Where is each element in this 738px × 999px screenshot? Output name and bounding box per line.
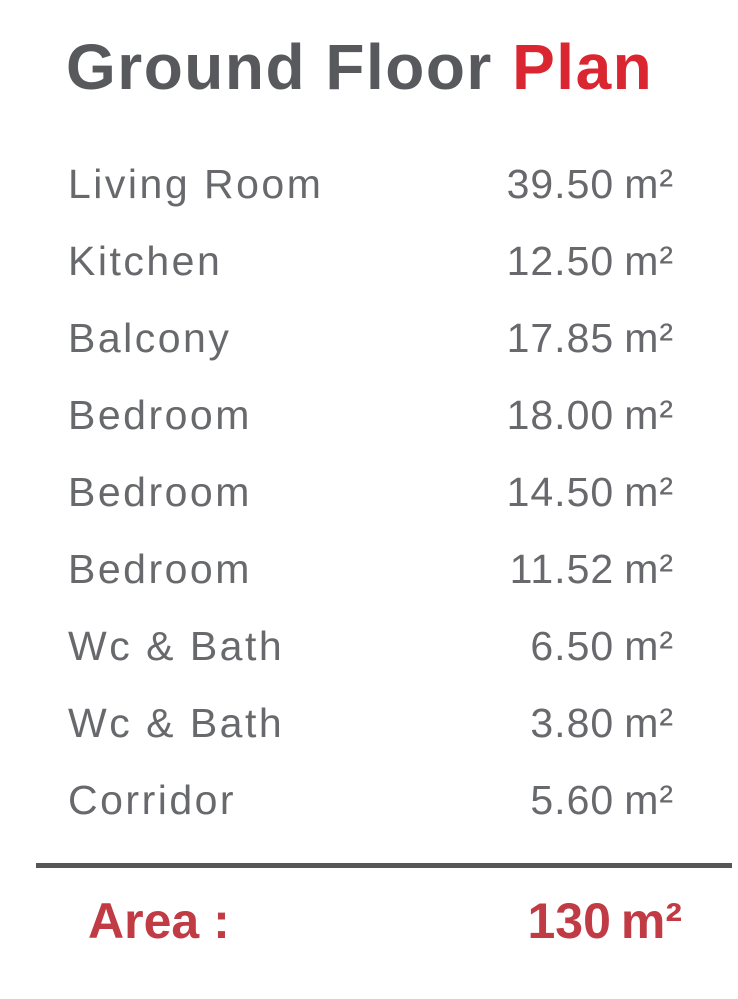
- room-area: 18.00m²: [507, 392, 674, 439]
- room-area-number: 5.60: [530, 777, 614, 823]
- room-name: Bedroom: [68, 469, 252, 516]
- room-area-unit: m²: [624, 623, 674, 669]
- room-area: 6.50m²: [530, 623, 674, 670]
- room-area-table: Living Room 39.50m² Kitchen 12.50m² Balc…: [0, 146, 738, 839]
- room-area-number: 12.50: [507, 238, 615, 284]
- room-area-unit: m²: [624, 392, 674, 438]
- room-name: Wc & Bath: [68, 700, 284, 747]
- page-title: Ground Floor Plan: [0, 0, 738, 104]
- room-area-number: 6.50: [530, 623, 614, 669]
- page-title-main: Ground Floor: [66, 31, 512, 103]
- room-area: 5.60m²: [530, 777, 674, 824]
- room-area-number: 39.50: [507, 161, 615, 207]
- room-area-unit: m²: [624, 777, 674, 823]
- room-area: 3.80m²: [530, 700, 674, 747]
- room-area-number: 17.85: [507, 315, 615, 361]
- room-area: 17.85m²: [507, 315, 674, 362]
- table-row: Bedroom 11.52m²: [0, 531, 738, 608]
- table-row: Balcony 17.85m²: [0, 300, 738, 377]
- room-name: Corridor: [68, 777, 236, 824]
- total-area-row: Area : 130m²: [0, 892, 738, 950]
- room-area: 12.50m²: [507, 238, 674, 285]
- room-area-number: 14.50: [507, 469, 615, 515]
- room-area-unit: m²: [624, 238, 674, 284]
- table-row: Corridor 5.60m²: [0, 762, 738, 839]
- room-area-number: 11.52: [510, 546, 615, 592]
- room-area: 14.50m²: [507, 469, 674, 516]
- room-area: 39.50m²: [507, 161, 674, 208]
- page-title-accent: Plan: [512, 31, 653, 103]
- room-area-unit: m²: [624, 315, 674, 361]
- room-area-unit: m²: [624, 469, 674, 515]
- room-area: 11.52m²: [510, 546, 674, 593]
- room-area-unit: m²: [624, 546, 674, 592]
- room-area-number: 3.80: [530, 700, 614, 746]
- table-row: Wc & Bath 3.80m²: [0, 685, 738, 762]
- room-area-unit: m²: [624, 161, 674, 207]
- table-row: Bedroom 18.00m²: [0, 377, 738, 454]
- total-divider-line: [36, 863, 732, 868]
- total-area-label: Area :: [88, 892, 230, 950]
- total-area-number: 130: [527, 893, 610, 949]
- room-name: Living Room: [68, 161, 323, 208]
- room-area-unit: m²: [624, 700, 674, 746]
- room-area-number: 18.00: [507, 392, 615, 438]
- table-row: Bedroom 14.50m²: [0, 454, 738, 531]
- room-name: Kitchen: [68, 238, 222, 285]
- table-row: Wc & Bath 6.50m²: [0, 608, 738, 685]
- room-name: Balcony: [68, 315, 231, 362]
- table-row: Kitchen 12.50m²: [0, 223, 738, 300]
- total-area-value: 130m²: [527, 892, 682, 950]
- floor-plan-sheet: Ground Floor Plan Living Room 39.50m² Ki…: [0, 0, 738, 999]
- table-row: Living Room 39.50m²: [0, 146, 738, 223]
- room-name: Wc & Bath: [68, 623, 284, 670]
- room-name: Bedroom: [68, 546, 252, 593]
- room-name: Bedroom: [68, 392, 252, 439]
- total-area-unit: m²: [621, 893, 682, 949]
